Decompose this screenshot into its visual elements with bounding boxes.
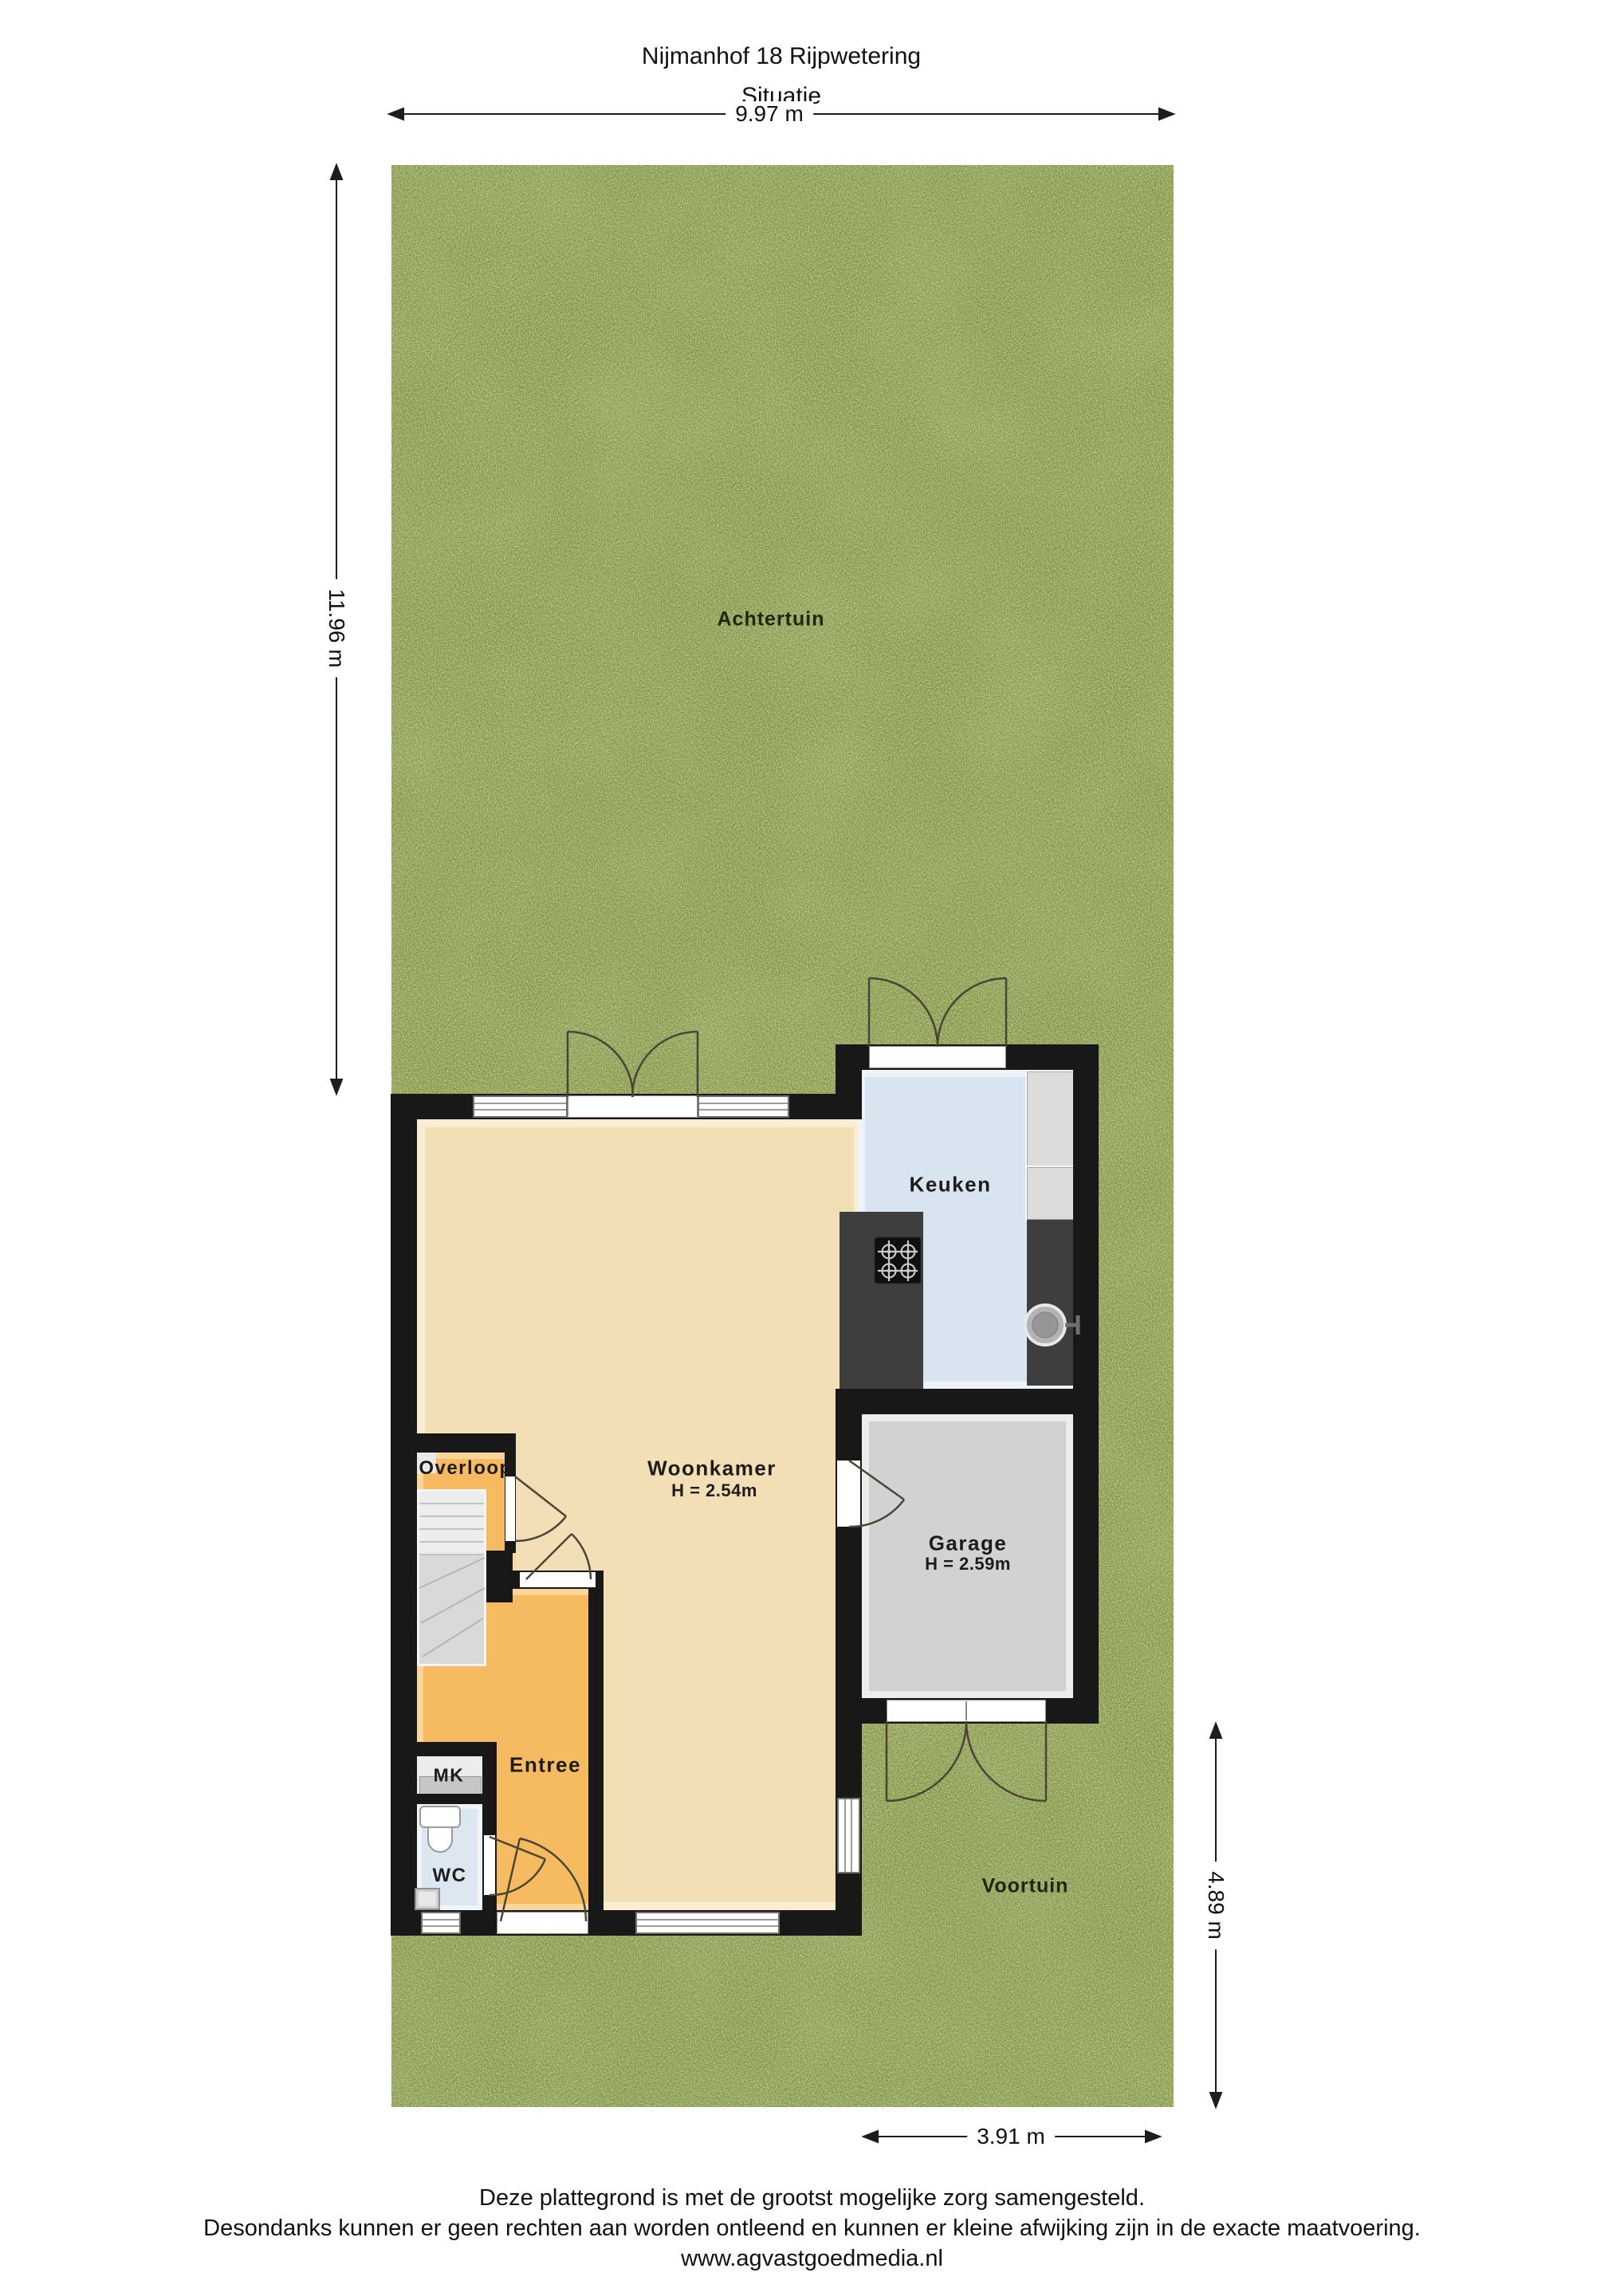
window-living-front: [635, 1912, 780, 1934]
title-address: Nijmanhof 18 Rijpwetering: [0, 37, 1563, 77]
label-hall: Entree: [509, 1753, 581, 1778]
stair-treads: [419, 1492, 484, 1555]
disclaimer-line1: Deze plattegrond is met de grootst mogel…: [0, 2183, 1624, 2213]
door-opening-landing: [505, 1476, 515, 1541]
label-front-garden: Voortuin: [982, 1875, 1069, 1898]
floorplan-page: { "title": { "line1": "Nijmanhof 18 Rijp…: [0, 0, 1624, 2296]
label-kitchen: Keuken: [910, 1173, 992, 1197]
window-living-top-right: [698, 1095, 789, 1118]
label-wc: WC: [433, 1865, 467, 1887]
wc-floor: [417, 1804, 482, 1910]
wall-kitchen-garage-right: [1073, 1044, 1099, 1724]
disclaimer-line3: www.agvastgoedmedia.nl: [0, 2243, 1624, 2274]
window-wc-front: [421, 1912, 461, 1934]
kitchen-sink-counter: [1027, 1220, 1073, 1386]
dim-bottom: 3.91 m: [967, 2124, 1055, 2149]
garden-doors-living: [568, 1095, 698, 1118]
wall-garage-left: [836, 1389, 862, 1724]
door-opening-wc: [484, 1835, 495, 1895]
label-meter-cupboard: MK: [434, 1765, 465, 1787]
dim-left: 11.96 m: [324, 579, 349, 677]
label-garage-height: H = 2.59m: [925, 1554, 1011, 1575]
dim-top: 9.97 m: [725, 101, 813, 127]
wall-mk-wc-divider: [391, 1794, 497, 1804]
front-door: [497, 1912, 588, 1934]
stair-winder: [419, 1555, 484, 1664]
garage-doors: [887, 1700, 1046, 1722]
wall-front: [391, 1910, 862, 1936]
label-living-room-height: H = 2.54m: [671, 1480, 757, 1501]
label-living-room: Woonkamer: [647, 1457, 777, 1481]
kitchen-counter-left: [840, 1212, 923, 1389]
wall-left: [391, 1094, 417, 1936]
wall-landing-top: [417, 1433, 516, 1453]
window-living-top-left: [473, 1095, 568, 1118]
garden-doors-kitchen: [869, 1046, 1006, 1068]
wall-kitchen-left-stub: [836, 1070, 862, 1119]
door-opening-hall-living: [520, 1572, 596, 1587]
disclaimer-line2: Desondanks kunnen er geen rechten aan wo…: [0, 2213, 1624, 2243]
disclaimer: Deze plattegrond is met de grootst mogel…: [0, 2183, 1624, 2274]
wall-kitchen-garage-divider: [836, 1389, 1099, 1414]
kitchen-cabinet-top: [1027, 1071, 1075, 1166]
door-opening-living-garage: [837, 1461, 860, 1527]
label-back-garden: Achtertuin: [718, 608, 825, 631]
wall-hall-right: [588, 1589, 604, 1910]
staircase: [417, 1489, 486, 1666]
window-living-side: [837, 1798, 860, 1873]
kitchen-cabinet-mid: [1027, 1167, 1075, 1220]
label-garage: Garage: [929, 1531, 1008, 1556]
dim-right: 4.89 m: [1203, 1862, 1229, 1949]
wall-stair-stub: [486, 1551, 513, 1602]
wall-mk-top: [391, 1742, 497, 1756]
label-landing: Overloop: [419, 1457, 512, 1480]
